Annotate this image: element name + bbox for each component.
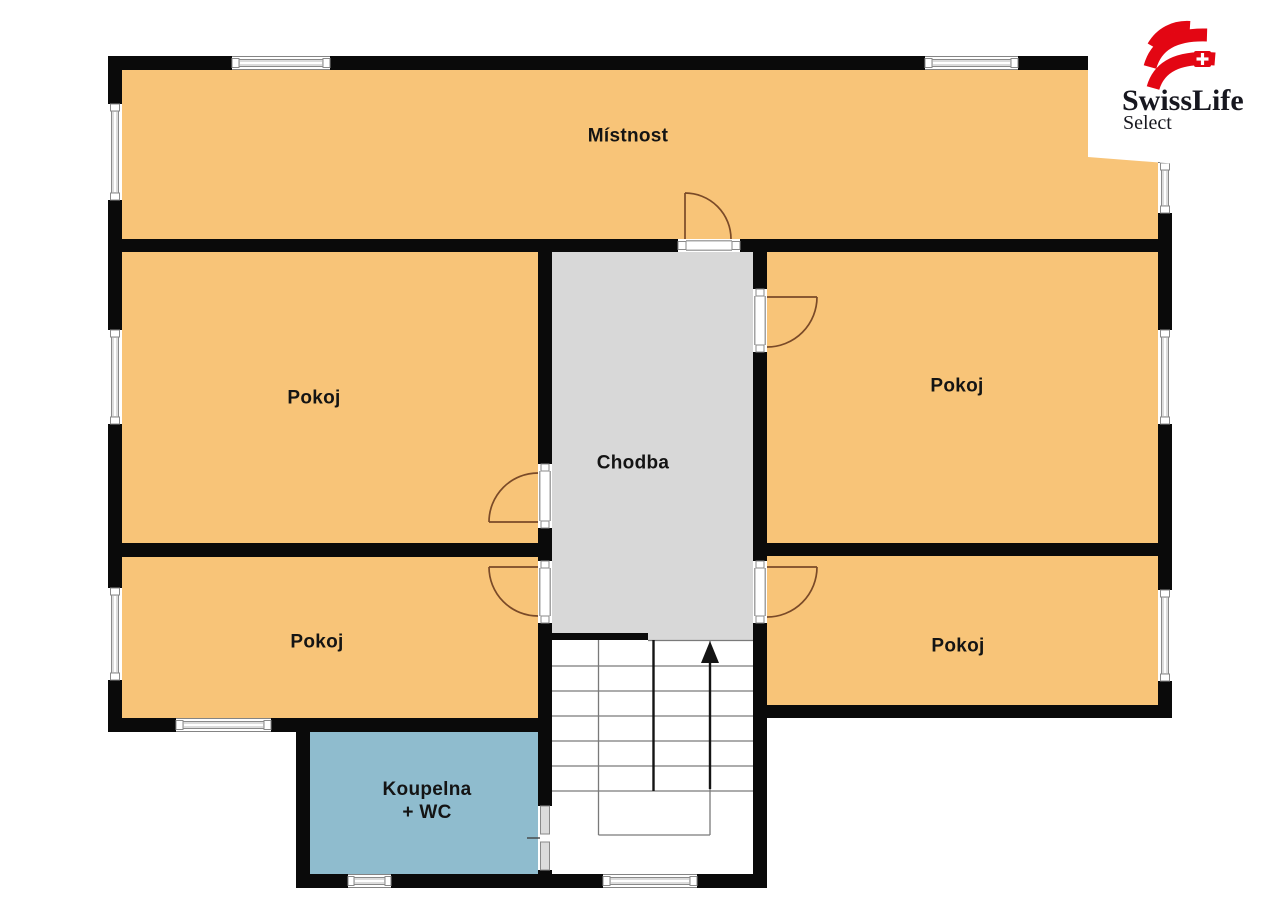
window	[1158, 590, 1172, 681]
door-threshold	[753, 561, 767, 623]
wall-stairs-right	[753, 640, 767, 874]
logo-subbrand-text: Select	[1123, 112, 1172, 135]
room-label-pokoj-bottom-left: Pokoj	[290, 631, 343, 654]
room-label-chodba: Chodba	[597, 452, 670, 475]
window	[232, 57, 330, 70]
door-threshold	[753, 289, 767, 352]
door-threshold	[678, 239, 740, 252]
window	[108, 330, 122, 424]
wall-mistnost-bottom	[108, 239, 1172, 252]
room-label-pokoj-mid-left: Pokoj	[287, 387, 340, 410]
window	[603, 875, 697, 888]
window	[108, 104, 122, 200]
wall-bottom-right	[753, 705, 1172, 718]
door-threshold	[538, 464, 552, 528]
window	[176, 719, 271, 732]
window	[348, 875, 391, 888]
wall-divider-left	[108, 543, 552, 557]
window	[1158, 330, 1172, 424]
door-threshold	[538, 561, 552, 623]
room-label-mistnost: Místnost	[588, 125, 669, 148]
wall-stairs-stub	[545, 633, 648, 640]
window	[1158, 163, 1172, 213]
room-label-koupelna-line2: + WC	[383, 801, 472, 824]
room-label-koupelna-line1: Koupelna	[383, 778, 472, 801]
wall-bathroom-left	[296, 718, 310, 888]
room-label-koupelna: Koupelna + WC	[383, 778, 472, 824]
room-label-pokoj-bottom-right: Pokoj	[931, 635, 984, 658]
wall-bottom-left	[108, 718, 552, 732]
window	[925, 57, 1018, 70]
room-mistnost	[122, 70, 1158, 239]
room-label-pokoj-mid-right: Pokoj	[930, 375, 983, 398]
window	[108, 588, 122, 680]
room-pokoj-bottom-right	[767, 556, 1158, 705]
wall-divider-right	[753, 543, 1172, 556]
room-pokoj-mid-right	[767, 252, 1158, 543]
floor-plan: Místnost Pokoj Pokoj Chodba Pokoj Pokoj …	[0, 0, 1280, 905]
room-chodba	[552, 252, 753, 640]
